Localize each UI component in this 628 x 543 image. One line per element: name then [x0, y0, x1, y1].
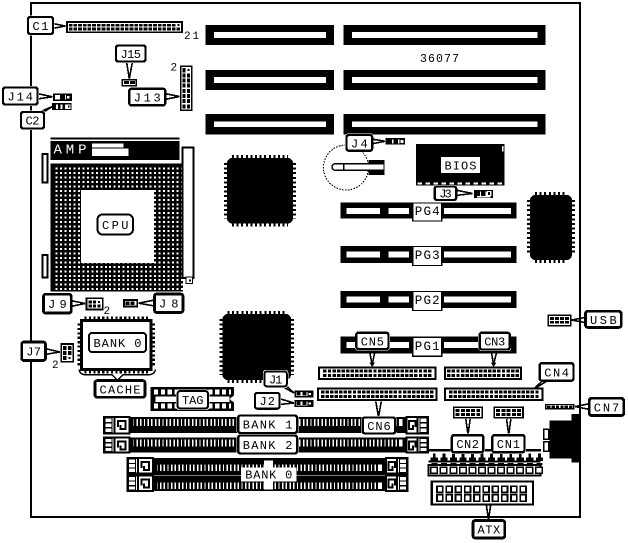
svg-text:CN7: CN7	[594, 401, 619, 415]
svg-text:J1: J1	[269, 373, 282, 387]
svg-text:BANK 0: BANK 0	[245, 469, 292, 483]
svg-text:CPU: CPU	[102, 219, 129, 233]
svg-text:TAG: TAG	[182, 394, 204, 408]
svg-text:CACHE: CACHE	[100, 383, 141, 397]
svg-text:PG4: PG4	[415, 205, 440, 219]
svg-text:J13: J13	[134, 91, 161, 105]
svg-text:PG1: PG1	[415, 340, 440, 354]
svg-text:ATX: ATX	[478, 524, 501, 538]
svg-text:PG2: PG2	[415, 294, 440, 308]
svg-text:J14: J14	[8, 90, 34, 104]
svg-text:PG3: PG3	[415, 249, 440, 263]
svg-text:C2: C2	[26, 115, 40, 129]
svg-text:CN1: CN1	[497, 438, 520, 452]
svg-text:CN6: CN6	[367, 420, 391, 434]
svg-text:CN3: CN3	[484, 336, 505, 350]
svg-text:2: 2	[104, 306, 111, 318]
svg-text:J7: J7	[26, 346, 41, 360]
svg-text:C1: C1	[33, 20, 49, 34]
svg-text:USB: USB	[590, 314, 617, 328]
svg-text:BIOS: BIOS	[445, 160, 477, 174]
svg-text:BANK 0: BANK 0	[94, 337, 142, 351]
svg-text:J2: J2	[260, 395, 276, 409]
svg-text:CN5: CN5	[361, 335, 384, 349]
svg-text:2: 2	[184, 31, 191, 43]
svg-text:J3: J3	[439, 188, 452, 202]
svg-text:CN4: CN4	[544, 366, 569, 380]
svg-text:CN2: CN2	[456, 438, 479, 452]
svg-text:36077: 36077	[420, 53, 462, 66]
svg-text:1: 1	[193, 31, 200, 43]
svg-text:2: 2	[52, 360, 59, 372]
svg-text:J15: J15	[121, 48, 142, 62]
svg-text:AMP: AMP	[54, 143, 87, 159]
svg-text:2: 2	[171, 63, 178, 75]
